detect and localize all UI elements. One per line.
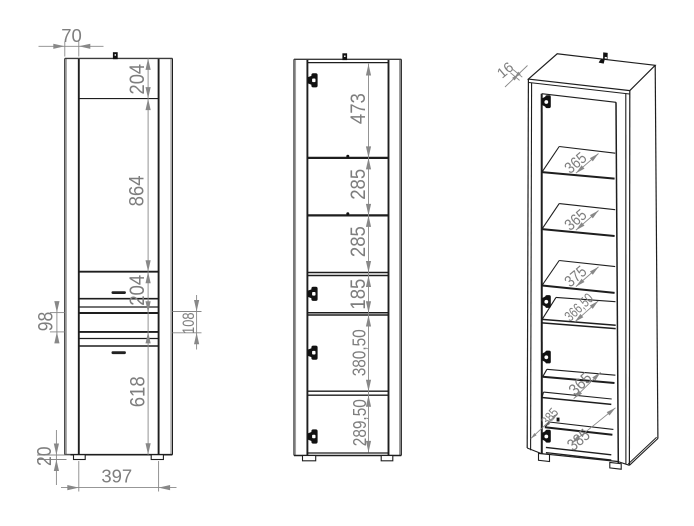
svg-text:397: 397 [101,466,132,487]
svg-text:285: 285 [346,169,370,200]
svg-text:285: 285 [346,226,370,257]
svg-text:473: 473 [346,93,370,124]
svg-text:204: 204 [125,275,149,306]
svg-text:380,50: 380,50 [350,329,370,376]
svg-text:864: 864 [125,175,149,206]
svg-text:70: 70 [61,25,82,46]
svg-text:20: 20 [34,447,56,467]
svg-text:185: 185 [346,279,370,310]
svg-text:289,50: 289,50 [350,399,370,446]
svg-text:108: 108 [180,312,198,334]
svg-text:98: 98 [35,312,58,332]
svg-text:204: 204 [125,64,149,95]
svg-text:618: 618 [126,376,150,407]
